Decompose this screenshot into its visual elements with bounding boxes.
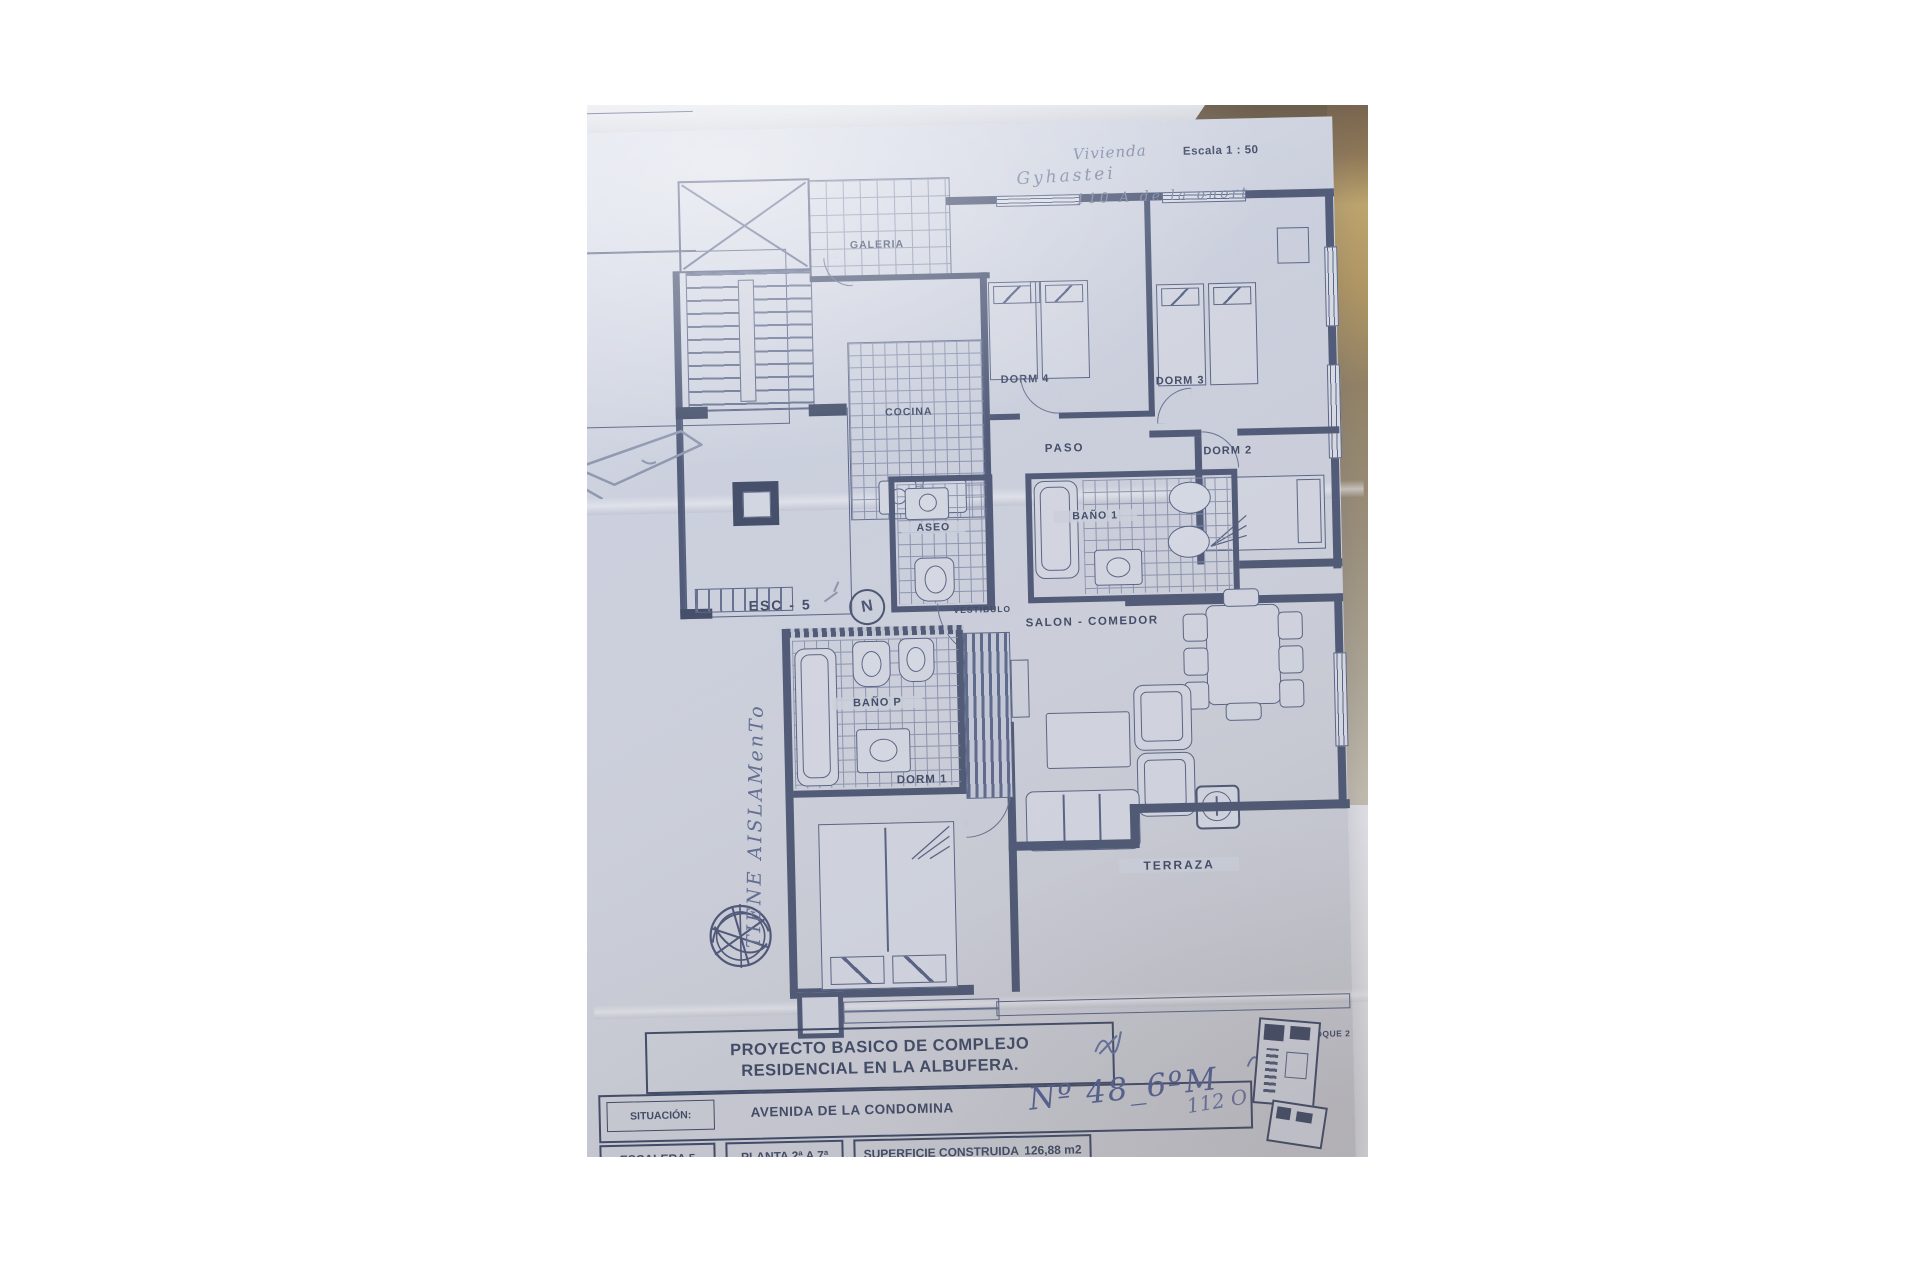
building-cell	[1276, 1106, 1292, 1120]
dorm3-label: DORM 3	[1140, 374, 1220, 388]
situacion-value: AVENIDA DE LA CONDOMINA	[750, 1100, 953, 1120]
blanket-fold-icon	[907, 824, 952, 861]
chair	[1225, 702, 1261, 721]
bed-divider	[884, 828, 889, 952]
plan-content: GALERIA	[587, 105, 1368, 1157]
tv-cabinet	[1010, 659, 1029, 717]
armchair-cushion	[1140, 691, 1183, 742]
bed-single	[1040, 280, 1090, 379]
side-note-handwriting: TIENE AISLAMenTo	[743, 638, 769, 948]
wall	[990, 414, 1020, 421]
wall	[1239, 558, 1342, 568]
bathtub-inner	[1040, 486, 1072, 571]
coffee-table	[1046, 711, 1131, 769]
window	[996, 194, 1080, 207]
paso-label: PASO	[1027, 442, 1103, 456]
pen-scribble	[1091, 1027, 1126, 1058]
cocina-label: COCINA	[869, 405, 949, 419]
handwriting-line2: Gyhastei	[1016, 164, 1116, 190]
staircase-rail	[738, 280, 757, 402]
bathtub	[1033, 480, 1079, 579]
insulated-wall	[786, 625, 964, 638]
armchair	[1133, 684, 1192, 751]
terraza-label: TERRAZA	[1119, 857, 1239, 874]
window	[1333, 652, 1348, 746]
chair	[1278, 645, 1304, 674]
aseo-label: ASEO	[901, 521, 965, 534]
plan-paper: GALERIA	[587, 116, 1358, 1157]
north-indicator: N	[847, 586, 888, 627]
planta-box: PLANTA 2ª A 7ª	[725, 1140, 844, 1157]
screenshot-background: GALERIA	[0, 0, 1920, 1280]
escalera-value: ESCALERA 5	[620, 1151, 696, 1157]
bathtub-inner	[800, 654, 831, 779]
chair	[1279, 679, 1305, 708]
wall	[1059, 410, 1155, 418]
door-arc	[1156, 388, 1192, 424]
wall	[1237, 426, 1339, 435]
building-cell	[1296, 1111, 1313, 1123]
chair	[1223, 588, 1259, 607]
elevator-x-icon	[680, 180, 810, 271]
chair	[1277, 611, 1303, 640]
bano1-label: BAÑO 1	[1053, 509, 1137, 523]
pillow	[1045, 284, 1083, 303]
building-cell	[1290, 1026, 1311, 1041]
superficie-value: 126,88 m2	[1024, 1142, 1082, 1157]
pillow	[830, 956, 885, 985]
escalera-box: ESCALERA 5	[599, 1143, 716, 1157]
pillow	[1213, 286, 1251, 305]
bed-single	[1156, 283, 1206, 386]
bed-single	[1208, 282, 1258, 385]
armchair-cushion	[1144, 759, 1187, 808]
pillow	[892, 954, 947, 983]
sofa-divider	[1063, 795, 1066, 845]
bathtub	[794, 648, 839, 787]
building-footprint	[1252, 1017, 1321, 1108]
wall	[793, 787, 965, 798]
window	[1327, 364, 1342, 458]
building-court	[1263, 1048, 1279, 1093]
building-wing	[1266, 1099, 1328, 1149]
storage-door	[743, 491, 772, 518]
superficie-label: SUPERFICIE CONSTRUIDA	[863, 1144, 1019, 1157]
floorplan-photo: GALERIA	[587, 105, 1368, 1157]
site-plan: BLOQUE 2	[1251, 1012, 1360, 1144]
corner-closet	[1277, 227, 1310, 264]
bed-double	[818, 821, 958, 990]
nightstand	[1030, 281, 1040, 303]
window	[1324, 246, 1339, 326]
superficie-box: SUPERFICIE CONSTRUIDA 126,88 m2	[853, 1134, 1092, 1157]
chair	[1182, 613, 1208, 642]
galeria-label: GALERIA	[832, 238, 922, 252]
scale-label: Escala 1 : 50	[1183, 144, 1259, 158]
handwriting-line1: Vivienda	[1072, 141, 1147, 163]
sofa-divider	[1099, 794, 1102, 844]
compass-scribble-icon	[702, 897, 780, 975]
situacion-label: SITUACIÓN:	[630, 1109, 692, 1122]
pillow	[993, 285, 1031, 304]
banop-label: BAÑO P	[832, 696, 922, 710]
north-letter: N	[860, 597, 874, 617]
esc5-label: ESC - 5	[737, 596, 823, 614]
wall-block	[809, 403, 847, 416]
title-block: PROYECTO BASICO DE COMPLEJO RESIDENCIAL …	[595, 1008, 1365, 1157]
dining-table	[1205, 604, 1281, 706]
door-arc	[1020, 375, 1060, 415]
dorm2-label: DORM 2	[1190, 444, 1266, 458]
building-cell	[1263, 1024, 1284, 1042]
chair	[1183, 647, 1209, 676]
dorm1-label: DORM 1	[879, 773, 965, 787]
door-arc	[823, 257, 853, 287]
handwriting-line3: 110 A de la onort	[1076, 185, 1250, 208]
pillow	[1161, 287, 1199, 306]
elevator-shaft	[677, 178, 811, 273]
situacion-label-box: SITUACIÓN:	[606, 1100, 715, 1132]
building-unit	[1284, 1052, 1308, 1080]
pillow	[1296, 479, 1321, 544]
door-arc	[965, 792, 1011, 838]
wardrobe	[963, 632, 1014, 799]
project-title-line2: RESIDENCIAL EN LA ALBUFERA.	[741, 1056, 1019, 1081]
pencil-sketch	[587, 423, 715, 500]
wall-block	[676, 407, 708, 420]
planta-value: PLANTA 2ª A 7ª	[741, 1148, 829, 1157]
